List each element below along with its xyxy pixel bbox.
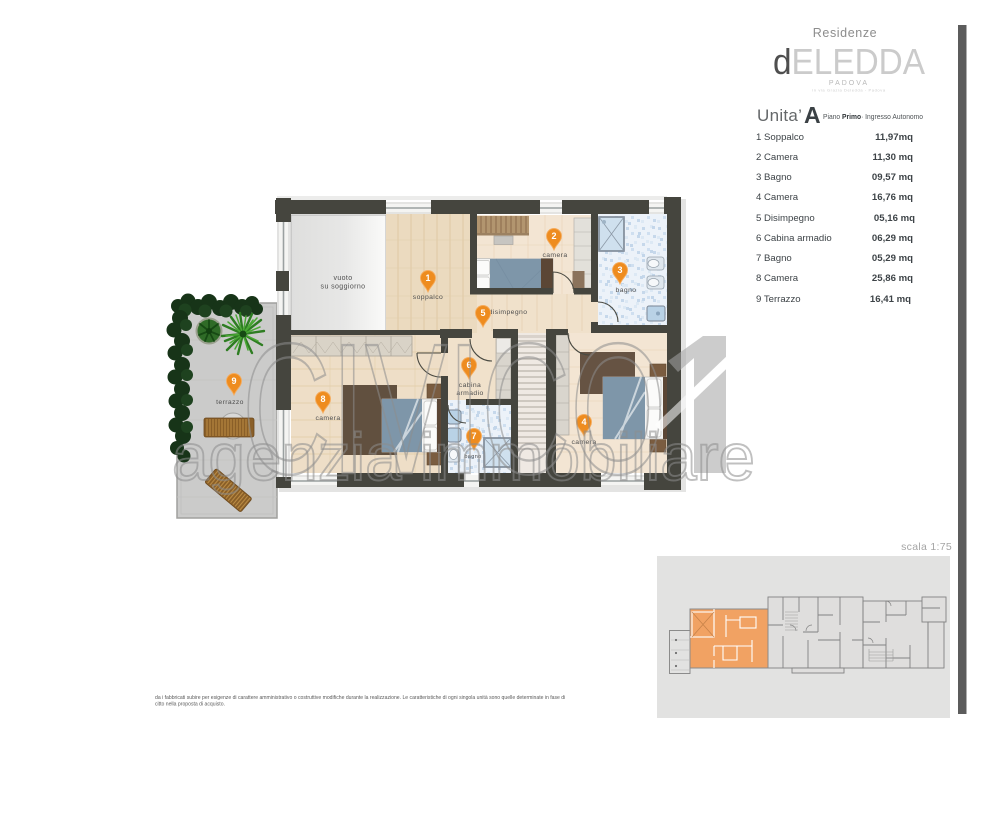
svg-text:3 Bagno: 3 Bagno — [756, 172, 792, 183]
svg-text:PADOVA: PADOVA — [829, 80, 869, 87]
svg-text:citto nella proposta di acquis: citto nella proposta di acquisto. — [155, 702, 225, 708]
svg-text:vuoto: vuoto — [333, 275, 352, 282]
svg-text:16,41 mq: 16,41 mq — [870, 294, 911, 305]
svg-text:camera: camera — [542, 252, 567, 259]
svg-text:1 Soppalco: 1 Soppalco — [756, 132, 804, 143]
svg-text:2 Camera: 2 Camera — [756, 152, 799, 163]
svg-text:11,97mq: 11,97mq — [875, 132, 913, 143]
svg-text:Residenze: Residenze — [813, 26, 877, 40]
svg-text:9: 9 — [231, 376, 236, 386]
svg-text:scala 1:75: scala 1:75 — [901, 541, 952, 553]
svg-text:terrazzo: terrazzo — [216, 399, 244, 406]
svg-text:09,57 mq: 09,57 mq — [872, 172, 913, 183]
svg-text:1: 1 — [425, 273, 430, 283]
svg-text:agenzia immobiliare: agenzia immobiliare — [172, 420, 755, 495]
svg-text:11,30 mq: 11,30 mq — [872, 152, 913, 163]
svg-text:9 Terrazzo: 9 Terrazzo — [756, 294, 801, 305]
svg-text:06,29 mq: 06,29 mq — [872, 233, 913, 244]
svg-text:bagno: bagno — [616, 287, 637, 294]
svg-text:da i fabbricati subire per esi: da i fabbricati subire per esigenze di c… — [155, 695, 565, 701]
svg-text:25,86 mq: 25,86 mq — [872, 273, 913, 284]
svg-text:in via Grazia Deledda - Padova: in via Grazia Deledda - Padova — [812, 88, 886, 93]
svg-text:dELEDDA: dELEDDA — [773, 41, 925, 82]
svg-text:A: A — [804, 102, 821, 128]
svg-text:8 Camera: 8 Camera — [756, 273, 799, 284]
svg-text:7 Bagno: 7 Bagno — [756, 253, 792, 264]
svg-text:soppalco: soppalco — [413, 294, 443, 301]
svg-text:6 Cabina armadio: 6 Cabina armadio — [756, 233, 832, 244]
svg-text:Unita’: Unita’ — [757, 106, 802, 125]
svg-text:5 Disimpegno: 5 Disimpegno — [756, 213, 815, 224]
svg-text:16,76 mq: 16,76 mq — [872, 192, 913, 203]
svg-text:3: 3 — [617, 265, 622, 275]
svg-text:su soggiorno: su soggiorno — [321, 284, 366, 291]
svg-text:Piano Primo· Ingresso Autonomo: Piano Primo· Ingresso Autonomo — [823, 112, 923, 121]
svg-text:4 Camera: 4 Camera — [756, 192, 799, 203]
svg-text:05,16 mq: 05,16 mq — [874, 213, 915, 224]
svg-text:05,29 mq: 05,29 mq — [872, 253, 913, 264]
svg-text:2: 2 — [551, 231, 556, 241]
